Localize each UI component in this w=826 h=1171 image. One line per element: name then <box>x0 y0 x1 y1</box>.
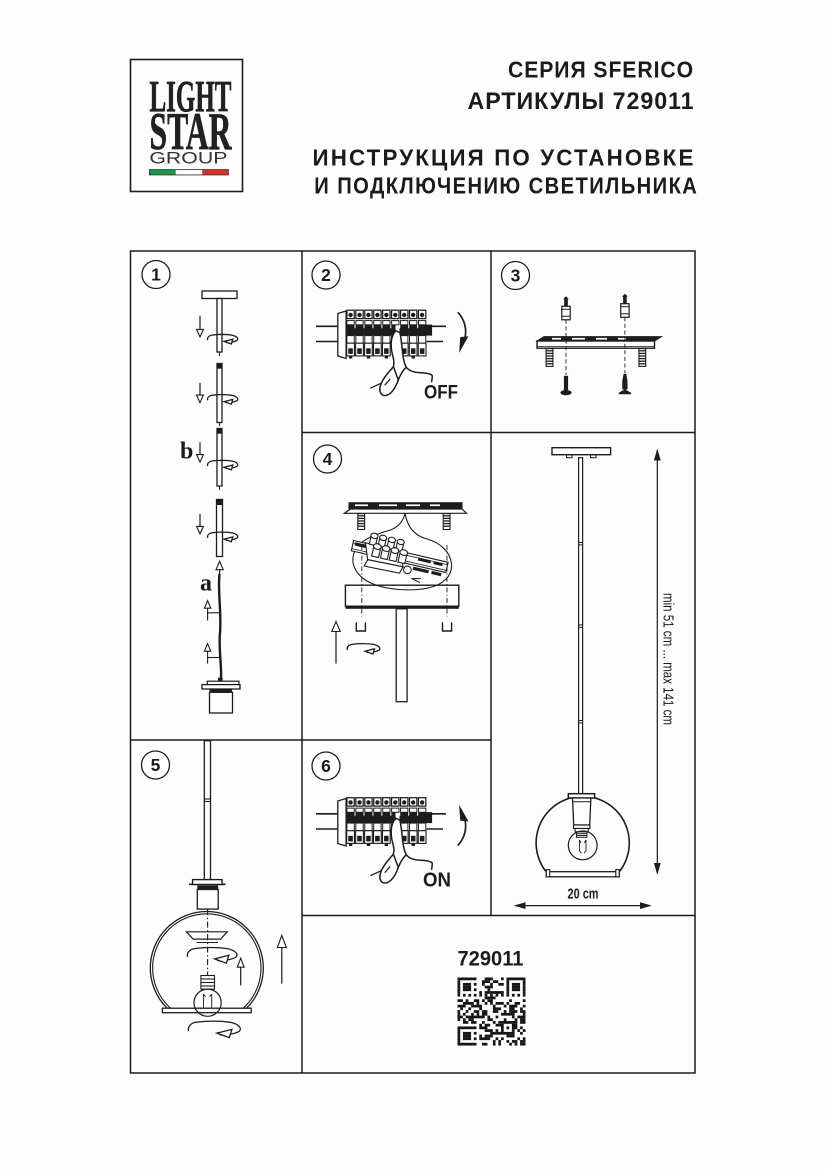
svg-text:b: b <box>180 438 193 464</box>
svg-text:ИНСТРУКЦИЯ ПО УСТАНОВКЕ: ИНСТРУКЦИЯ ПО УСТАНОВКЕ <box>313 145 696 171</box>
svg-text:a: a <box>200 570 212 596</box>
svg-text:20 cm: 20 cm <box>568 887 599 903</box>
svg-text:6: 6 <box>321 756 331 776</box>
svg-text:GROUP: GROUP <box>149 149 227 168</box>
svg-text:OFF: OFF <box>424 381 458 403</box>
svg-text:И ПОДКЛЮЧЕНИЮ СВЕТИЛЬНИКА: И ПОДКЛЮЧЕНИЮ СВЕТИЛЬНИКА <box>314 173 698 199</box>
svg-text:СЕРИЯ SFERICO: СЕРИЯ SFERICO <box>508 57 694 83</box>
svg-text:4: 4 <box>323 449 333 469</box>
svg-text:ON: ON <box>423 869 451 891</box>
svg-text:2: 2 <box>321 265 331 285</box>
svg-text:3: 3 <box>511 266 521 286</box>
svg-text:5: 5 <box>151 755 161 775</box>
svg-text:1: 1 <box>151 265 161 285</box>
svg-text:729011: 729011 <box>458 946 524 970</box>
svg-text:АРТИКУЛЫ 729011: АРТИКУЛЫ 729011 <box>468 88 695 115</box>
svg-text:min 51 cm ... max 141 cm: min 51 cm ... max 141 cm <box>660 593 677 725</box>
